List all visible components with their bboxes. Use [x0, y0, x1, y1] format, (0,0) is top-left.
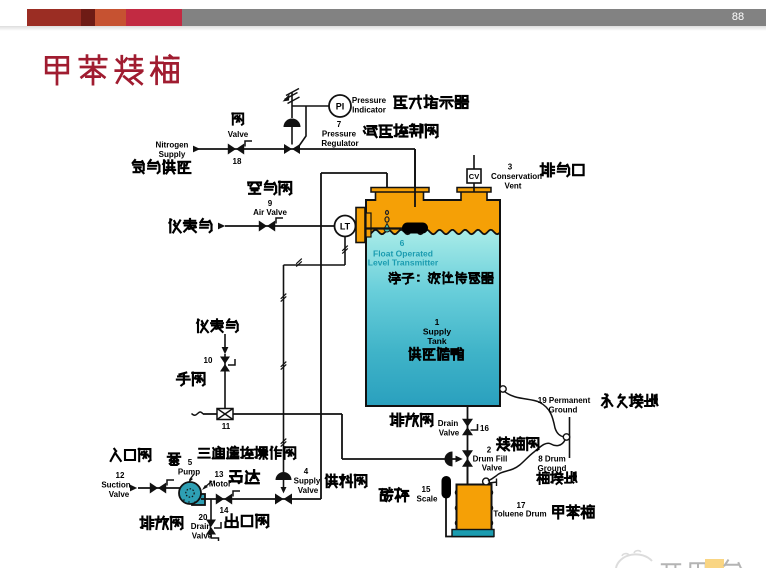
svg-text:Regulator: Regulator	[321, 139, 358, 148]
svg-text:4: 4	[304, 467, 309, 476]
svg-text:Supply: Supply	[423, 327, 452, 337]
svg-text:6: 6	[400, 238, 405, 248]
svg-text:Nitrogen: Nitrogen	[156, 141, 189, 150]
svg-text:20: 20	[199, 513, 208, 522]
svg-text:Ground: Ground	[549, 406, 578, 415]
svg-text:Drain: Drain	[438, 419, 459, 428]
svg-text:Scale: Scale	[417, 495, 438, 504]
svg-text:8 Drum: 8 Drum	[538, 455, 566, 464]
svg-text:CV: CV	[469, 172, 479, 181]
svg-text:Valve: Valve	[439, 429, 460, 438]
svg-text:18: 18	[233, 157, 242, 166]
svg-text:15: 15	[422, 485, 431, 494]
svg-text:1: 1	[435, 317, 440, 327]
svg-text:Pump: Pump	[178, 468, 200, 477]
svg-text:Level Transmitter: Level Transmitter	[368, 258, 439, 268]
svg-text:Conservation: Conservation	[491, 172, 542, 181]
svg-text:14: 14	[220, 506, 229, 515]
svg-text:Valve: Valve	[298, 486, 319, 495]
svg-text:13: 13	[215, 470, 224, 479]
svg-text:5: 5	[188, 458, 193, 467]
svg-text:Pressure: Pressure	[352, 96, 387, 105]
svg-text:Suction: Suction	[101, 481, 130, 490]
svg-text:Valve: Valve	[109, 490, 130, 499]
svg-text:Pressure: Pressure	[322, 130, 357, 139]
svg-text:12: 12	[116, 471, 125, 480]
svg-text:9: 9	[268, 199, 273, 208]
svg-text:Supply: Supply	[294, 477, 321, 486]
svg-text:Motor: Motor	[209, 480, 231, 489]
svg-text:Drum Fill: Drum Fill	[473, 455, 508, 464]
svg-text:7: 7	[337, 120, 342, 129]
svg-text:3: 3	[508, 163, 513, 172]
svg-text:Toluene Drum: Toluene Drum	[493, 510, 546, 519]
svg-text:Valve: Valve	[192, 532, 213, 541]
svg-text:16: 16	[480, 424, 489, 433]
svg-text:Valve: Valve	[482, 464, 503, 473]
svg-text:2: 2	[487, 446, 492, 455]
svg-text:Supply: Supply	[159, 150, 186, 159]
svg-text:LT: LT	[340, 222, 351, 232]
svg-text:11: 11	[222, 422, 231, 431]
svg-text:Vent: Vent	[505, 182, 522, 191]
svg-text:Valve: Valve	[228, 130, 249, 139]
svg-text:Indicator: Indicator	[352, 106, 386, 115]
svg-text:Air Valve: Air Valve	[253, 208, 287, 217]
svg-text:19 Permanent: 19 Permanent	[538, 396, 591, 405]
svg-text:Tank: Tank	[427, 336, 446, 346]
svg-text:Drain: Drain	[191, 522, 212, 531]
svg-text:10: 10	[204, 356, 213, 365]
svg-text:PI: PI	[336, 102, 345, 112]
